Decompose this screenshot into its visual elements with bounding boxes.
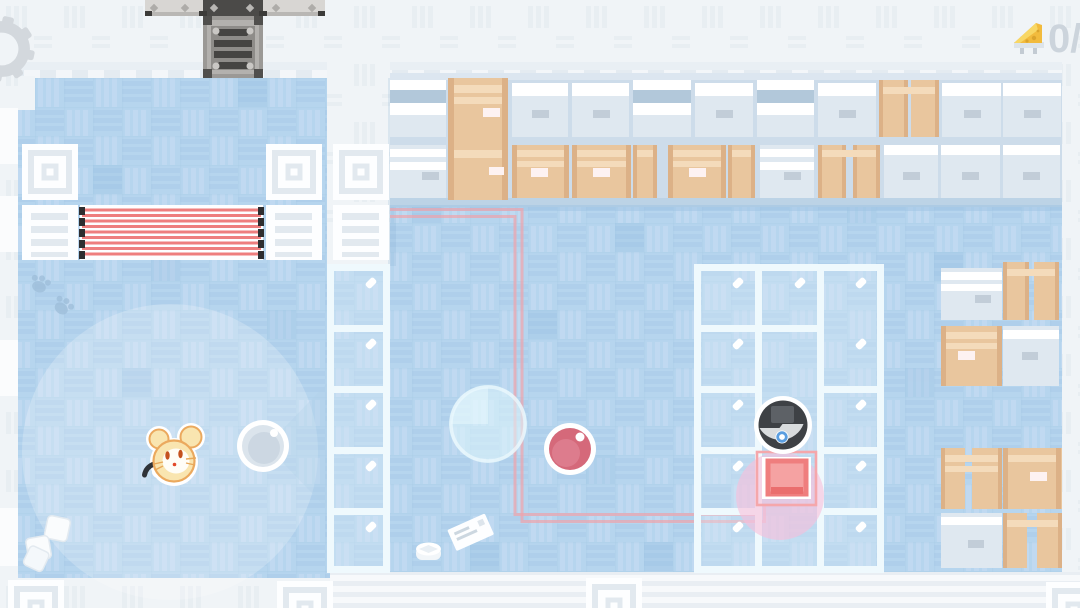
svg-text:0/5: 0/5 bbox=[1048, 17, 1080, 61]
